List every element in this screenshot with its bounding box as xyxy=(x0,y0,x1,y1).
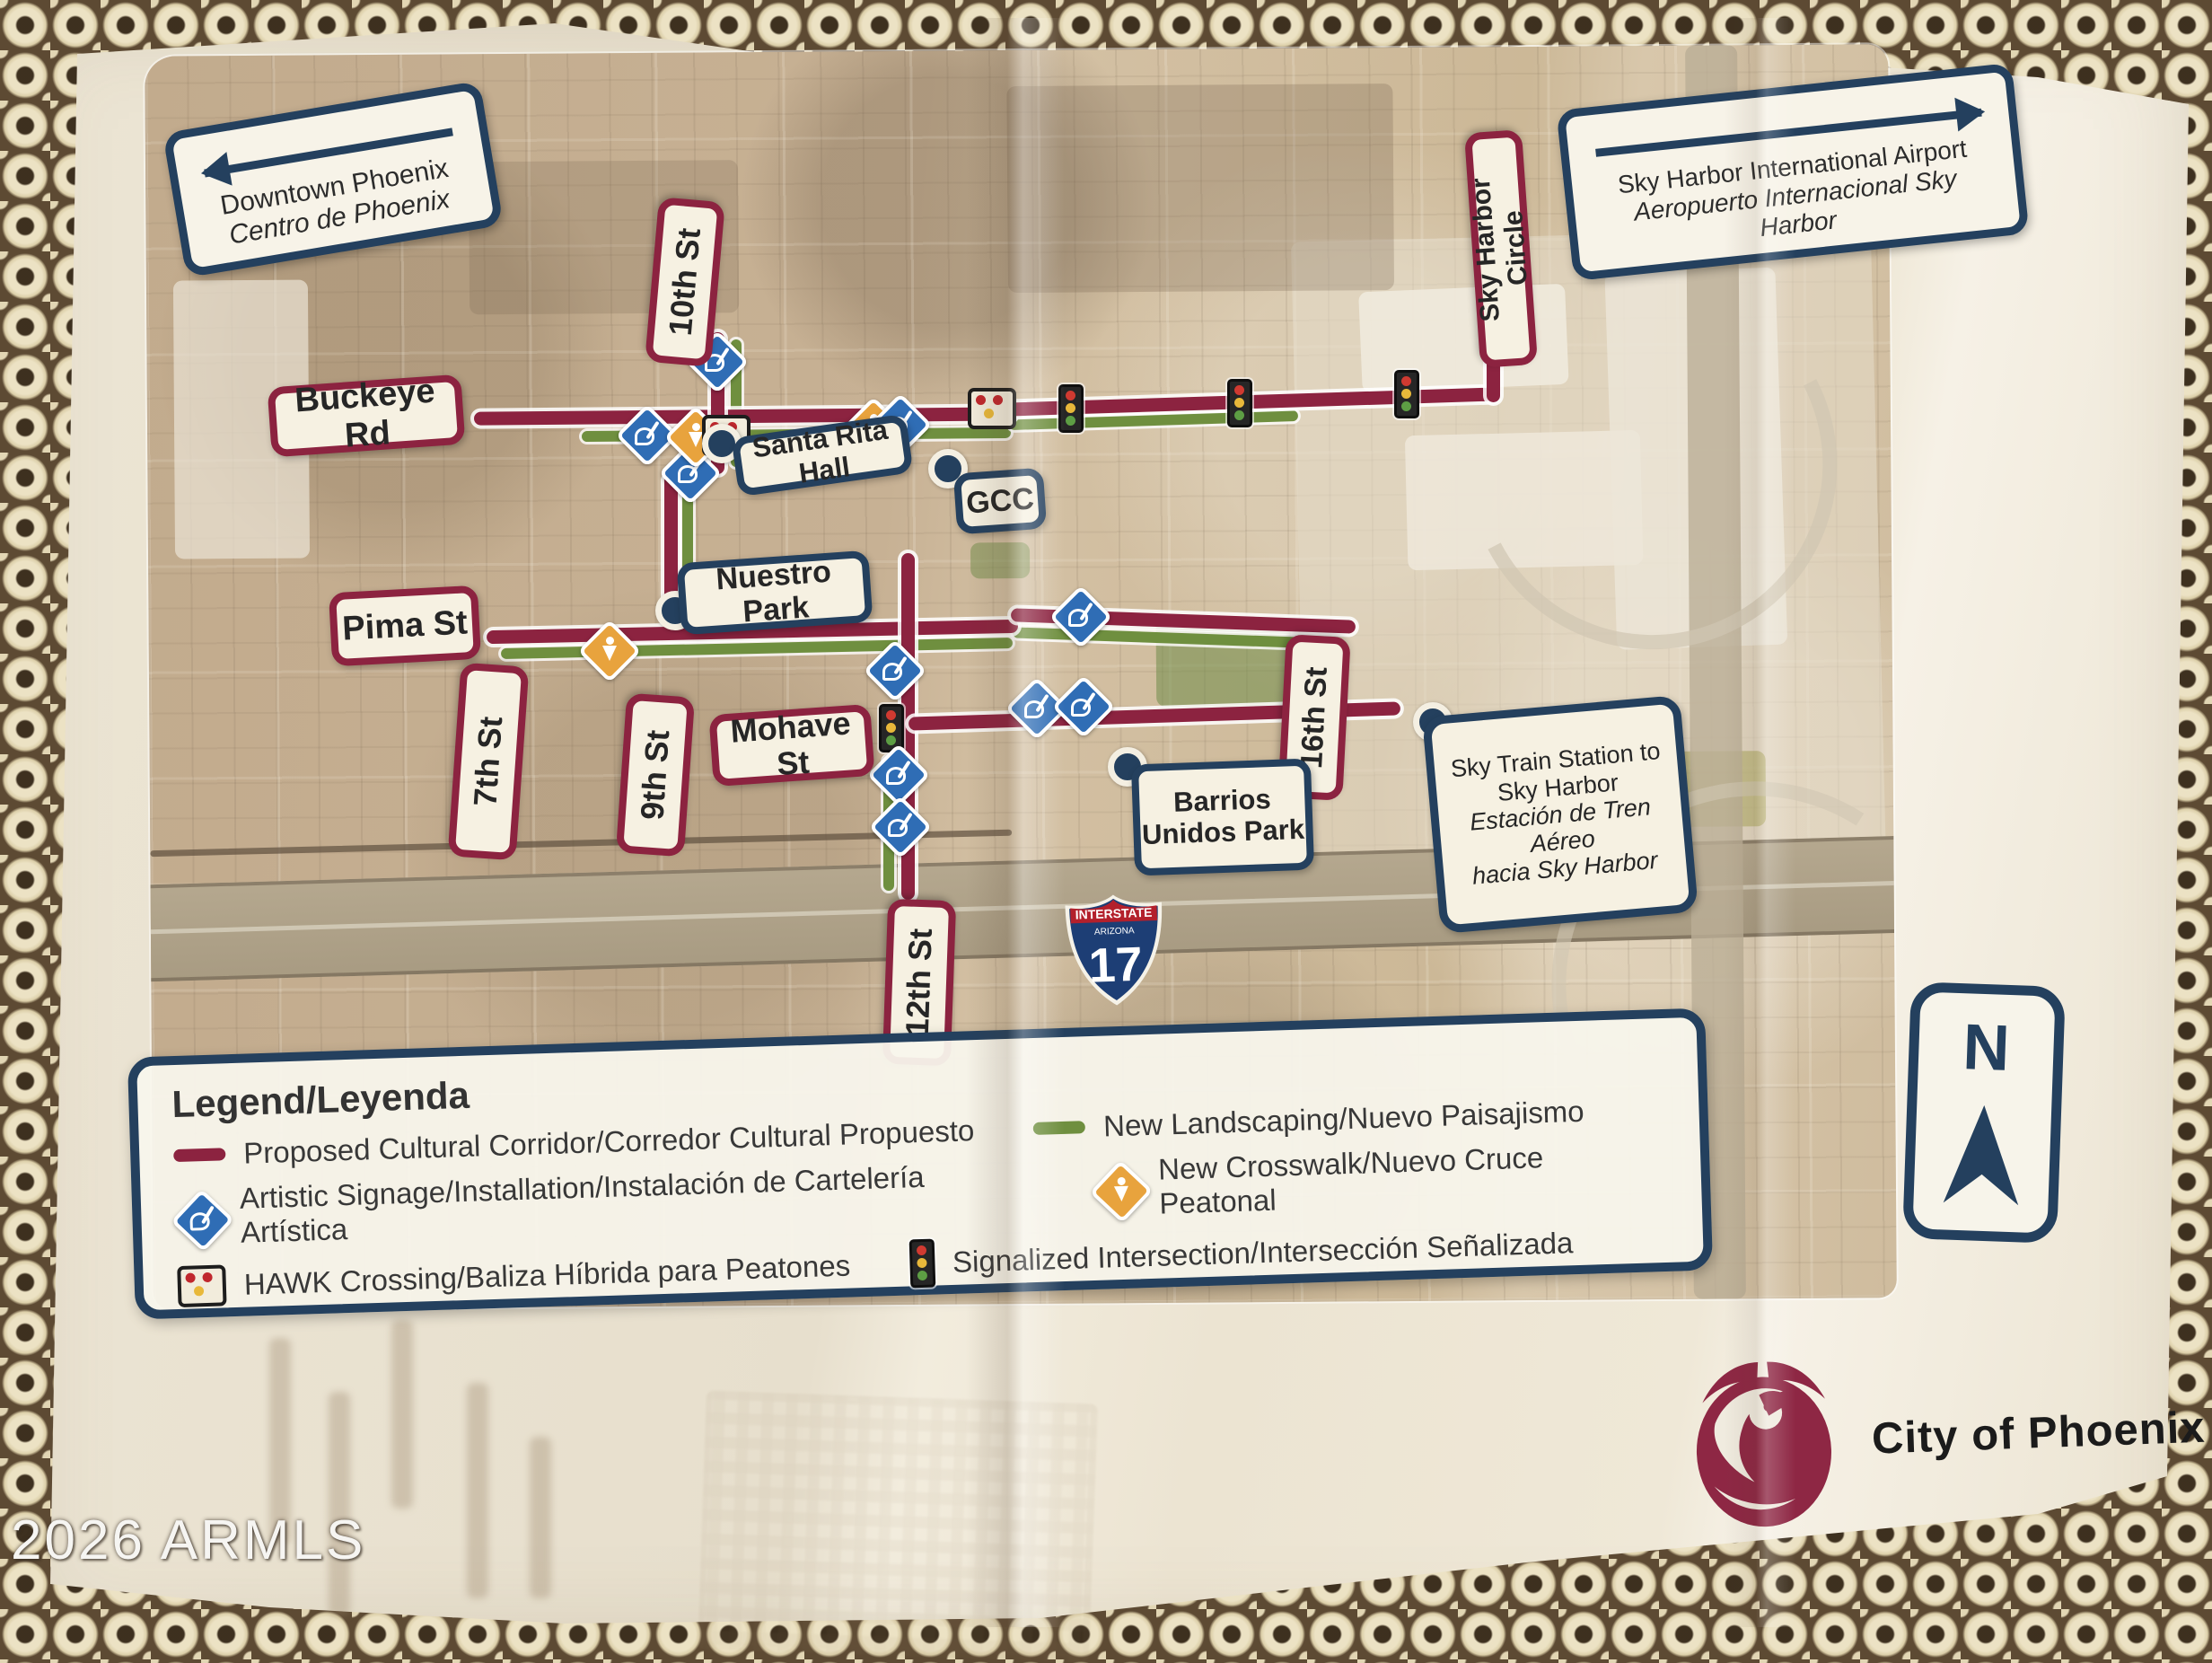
shield-banner-text: INTERSTATE xyxy=(1075,905,1152,922)
showthrough-text-ghost xyxy=(329,1392,350,1616)
interstate-17-shield: INTERSTATE ARIZONA 17 xyxy=(1063,891,1167,1009)
crosswalk-icon xyxy=(1093,1164,1142,1212)
shield-number: 17 xyxy=(1088,937,1144,993)
place-label-barrios-unidos-park: Barrios Unidos Park xyxy=(1131,759,1314,876)
hawk-crossing-icon xyxy=(968,388,1016,429)
traffic-signal-icon xyxy=(908,1239,935,1289)
place-label-line: Unidos Park xyxy=(1142,814,1305,851)
hawk-crossing-icon xyxy=(177,1264,226,1307)
north-arrow-icon xyxy=(1931,1095,2033,1216)
dark-block xyxy=(1006,84,1394,293)
watermark: 2026 ARMLS xyxy=(11,1509,365,1572)
shield-state-text: ARIZONA xyxy=(1094,926,1135,937)
city-of-phoenix-logo: City of Phoenix xyxy=(1669,1338,2208,1536)
showthrough-text-ghost xyxy=(391,1320,413,1509)
park-green xyxy=(970,542,1030,578)
place-label-nuestro-park: Nuestro Park xyxy=(676,550,873,636)
showthrough-text-ghost xyxy=(530,1437,551,1598)
corridor-line-icon xyxy=(173,1148,225,1162)
north-letter: N xyxy=(1962,1010,2011,1086)
artistic-signage-icon xyxy=(175,1192,224,1241)
street-label-mohave-st: Mohave St xyxy=(708,704,874,787)
logo-text: City of Phoenix xyxy=(1871,1403,2206,1465)
qr-code-ghost xyxy=(698,1390,1098,1662)
legend-item-label: HAWK Crossing/Baliza Híbrida para Peaton… xyxy=(243,1249,850,1302)
north-compass: N xyxy=(1902,981,2066,1244)
street-label-9th-st: 9th St xyxy=(616,693,695,858)
street-label-buckeye-rd: Buckeye Rd xyxy=(268,374,466,458)
legend-item-label: Signalized Intersection/Intersección Señ… xyxy=(952,1226,1573,1280)
place-label-sky-train-station: Sky Train Station to Sky Harbor Estación… xyxy=(1422,695,1698,934)
place-label-line: Barrios xyxy=(1173,784,1272,818)
phoenix-bird-icon xyxy=(1669,1350,1859,1535)
landscaping-line-icon xyxy=(1033,1121,1085,1135)
place-label-gcc: GCC xyxy=(953,468,1047,535)
legend: Legend/Leyenda Proposed Cultural Corrido… xyxy=(127,1007,1713,1319)
traffic-signal-icon xyxy=(1394,370,1419,418)
traffic-signal-icon xyxy=(1227,379,1252,427)
traffic-signal-icon xyxy=(1058,384,1084,433)
legend-item-label: Artistic Signage/Installation/Instalació… xyxy=(239,1157,1036,1250)
legend-item-label: New Crosswalk/Nuevo Cruce Peatonal xyxy=(1158,1137,1668,1221)
legend-item-label: New Landscaping/Nuevo Paisajismo xyxy=(1103,1095,1585,1144)
showthrough-text-ghost xyxy=(467,1383,488,1598)
street-label-7th-st: 7th St xyxy=(448,663,530,861)
street-label-pima-st: Pima St xyxy=(329,585,481,667)
